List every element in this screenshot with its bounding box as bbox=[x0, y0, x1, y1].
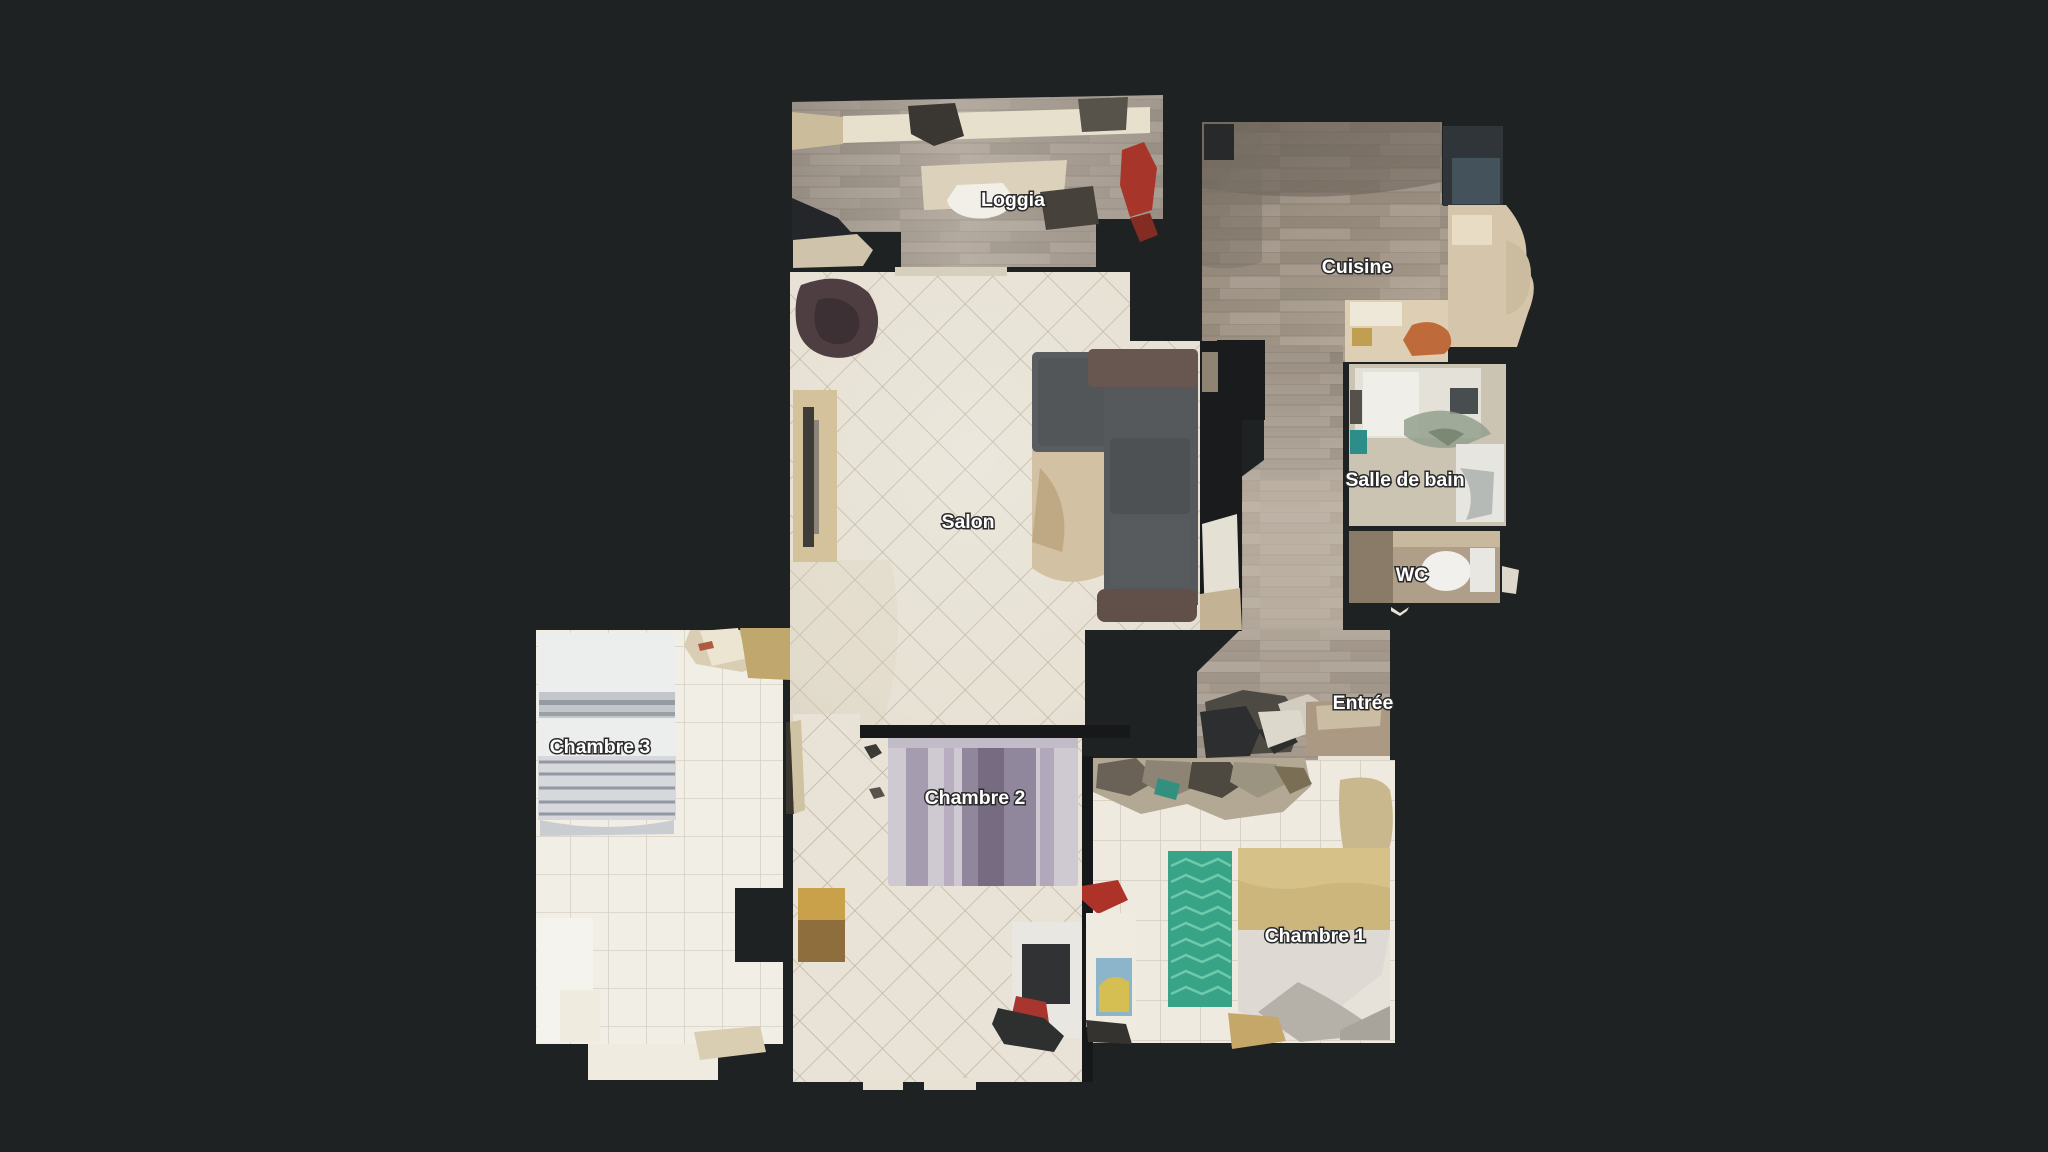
svg-text:Cuisine: Cuisine bbox=[1322, 256, 1393, 278]
svg-text:Chambre 3: Chambre 3 bbox=[550, 736, 651, 758]
svg-text:Chambre 1: Chambre 1 bbox=[1265, 925, 1366, 947]
svg-text:Loggia: Loggia bbox=[981, 189, 1045, 211]
svg-text:Chambre 2: Chambre 2 bbox=[925, 787, 1026, 809]
svg-text:Salon: Salon bbox=[941, 511, 994, 533]
svg-text:Entrée: Entrée bbox=[1333, 692, 1394, 714]
svg-text:WC: WC bbox=[1396, 564, 1429, 586]
svg-text:Salle de bain: Salle de bain bbox=[1345, 469, 1464, 491]
